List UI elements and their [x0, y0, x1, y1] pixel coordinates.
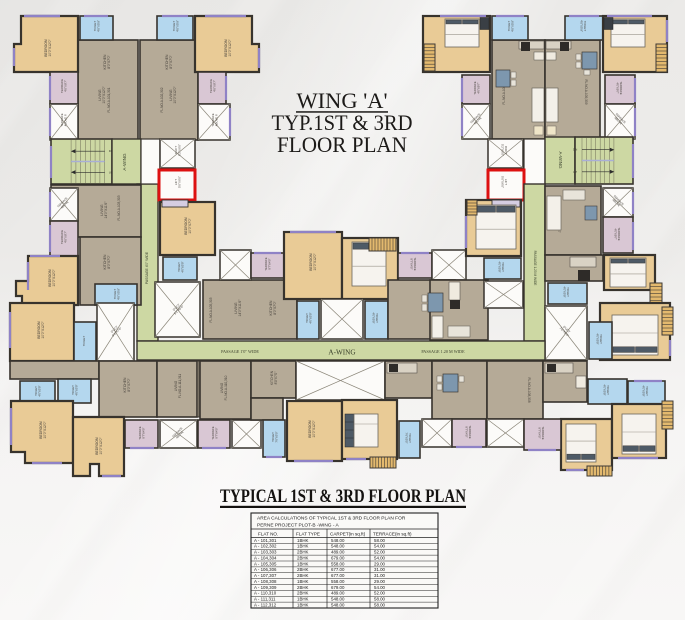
- svg-text:FLOOR PLAN: FLOOR PLAN: [277, 132, 407, 157]
- svg-text:BEDROOM10'0"X12'0": BEDROOM10'0"X12'0": [44, 39, 52, 57]
- svg-text:TERRACE9'7"X4'0": TERRACE9'7"X4'0": [211, 426, 218, 439]
- svg-text:FL.NO.A-105,305: FL.NO.A-105,305: [209, 297, 213, 322]
- svg-text:A-WING: A-WING: [558, 151, 563, 169]
- svg-text:FL.NO.A-109,309: FL.NO.A-109,309: [584, 80, 588, 105]
- svg-text:UP: UP: [573, 170, 577, 174]
- svg-text:31.00: 31.00: [374, 567, 386, 572]
- svg-text:2BHK: 2BHK: [297, 585, 309, 590]
- svg-text:TOILET4'0"X5'9": TOILET4'0"X5'9": [113, 288, 121, 300]
- svg-text:TYPICAL 1ST & 3RD FLOOR PLAN: TYPICAL 1ST & 3RD FLOOR PLAN: [220, 486, 466, 507]
- svg-text:A-WING: A-WING: [122, 153, 127, 171]
- svg-text:TERRACE(in sq.ft): TERRACE(in sq.ft): [373, 532, 412, 537]
- svg-text:TOILET4'0"X5'9": TOILET4'0"X5'9": [579, 20, 587, 32]
- svg-text:TOILET4'0"X5'9": TOILET4'0"X5'9": [305, 312, 312, 323]
- svg-text:558.00: 558.00: [331, 579, 345, 584]
- svg-text:29.00: 29.00: [374, 579, 386, 584]
- svg-text:1BHK: 1BHK: [297, 538, 309, 543]
- svg-text:TERRACE9'7"X4'0": TERRACE9'7"X4'0": [410, 257, 417, 270]
- svg-text:TERRACE4'0"X9'7": TERRACE4'0"X9'7": [614, 227, 621, 240]
- svg-text:TOILET7'6"X5'0": TOILET7'6"X5'0": [271, 431, 278, 442]
- svg-text:KITCHEN8'0"X7'0": KITCHEN8'0"X7'0": [270, 370, 278, 385]
- svg-text:A - 105,305: A - 105,305: [254, 561, 277, 566]
- svg-text:TERRACE9'7"X4'0": TERRACE9'7"X4'0": [138, 426, 145, 439]
- svg-text:TOILET4'0"X5'9": TOILET4'0"X5'9": [372, 312, 379, 323]
- svg-text:BEDROOM10'0"X12'0": BEDROOM10'0"X12'0": [308, 420, 316, 438]
- svg-text:54.00: 54.00: [374, 544, 386, 549]
- svg-text:TERRACEABOVE P.: TERRACEABOVE P.: [60, 113, 67, 126]
- svg-text:679.00: 679.00: [331, 555, 345, 560]
- svg-text:PASSAGE 4'0" WIDE: PASSAGE 4'0" WIDE: [145, 251, 149, 284]
- svg-text:TOILET4'0"X5'9": TOILET4'0"X5'9": [71, 384, 78, 395]
- svg-text:KITCHEN8'0"X7'0": KITCHEN8'0"X7'0": [103, 254, 111, 269]
- svg-text:AREA CALCULATIONS OF TYPICAL 1: AREA CALCULATIONS OF TYPICAL 1ST & 3RD F…: [257, 516, 406, 522]
- svg-text:BEDROOM10'0"X12'0": BEDROOM10'0"X12'0": [39, 421, 47, 439]
- svg-text:677.00: 677.00: [331, 573, 345, 578]
- svg-text:58.00: 58.00: [374, 538, 386, 543]
- svg-text:A - 109,309: A - 109,309: [254, 585, 277, 590]
- svg-text:29.00: 29.00: [374, 561, 386, 566]
- svg-text:1BHK: 1BHK: [297, 561, 309, 566]
- svg-text:1BHK: 1BHK: [297, 597, 309, 602]
- svg-text:1BHK: 1BHK: [297, 579, 309, 584]
- svg-text:679.00: 679.00: [331, 585, 345, 590]
- svg-text:PASSAGE 1'0" WIDE: PASSAGE 1'0" WIDE: [221, 349, 259, 354]
- svg-text:BEDROOM10'0"X12'0": BEDROOM10'0"X12'0": [95, 437, 103, 455]
- svg-text:BEDROOM10'0"X7'0": BEDROOM10'0"X7'0": [184, 217, 192, 235]
- svg-text:KITCHEN8'0"X7'0": KITCHEN8'0"X7'0": [103, 54, 111, 69]
- svg-text:A - 112,312: A - 112,312: [254, 602, 277, 607]
- svg-text:TOILET4'0"X5'9": TOILET4'0"X5'9": [172, 20, 180, 32]
- svg-text:58.00: 58.00: [374, 597, 386, 602]
- svg-text:2BHK: 2BHK: [297, 567, 309, 572]
- svg-text:548.00: 548.00: [331, 544, 345, 549]
- svg-text:TOILET7'6"X5'0": TOILET7'6"X5'0": [405, 432, 412, 443]
- svg-text:TOILET4'0"X5'9": TOILET4'0"X5'9": [34, 385, 41, 396]
- svg-text:52.00: 52.00: [374, 550, 386, 555]
- svg-text:TOILET4'0"X5'9": TOILET4'0"X5'9": [603, 384, 610, 395]
- svg-text:FL.NO.A-108,308: FL.NO.A-108,308: [527, 378, 531, 403]
- svg-text:BEDROOM10'0"X12'0": BEDROOM10'0"X12'0": [37, 321, 45, 339]
- svg-text:TOILET4'0"X5'9": TOILET4'0"X5'9": [563, 286, 570, 297]
- svg-text:31.00: 31.00: [374, 573, 386, 578]
- svg-text:2BHK: 2BHK: [297, 573, 309, 578]
- svg-text:2BHK: 2BHK: [297, 591, 309, 596]
- svg-text:TERRACE4'0"X9'7": TERRACE4'0"X9'7": [60, 230, 68, 244]
- svg-text:A - 101,301: A - 101,301: [254, 538, 277, 543]
- svg-text:TERRACE4'0"X9'7": TERRACE4'0"X9'7": [209, 79, 217, 93]
- svg-text:PASSAGE 1.20 M WIDE: PASSAGE 1.20 M WIDE: [421, 349, 465, 354]
- svg-text:TERRACE9'7"X4'0": TERRACE9'7"X4'0": [264, 257, 271, 270]
- svg-text:A-WING: A-WING: [328, 349, 355, 357]
- svg-text:A - 108,308: A - 108,308: [254, 579, 277, 584]
- svg-text:FLAT NO.: FLAT NO.: [258, 532, 278, 537]
- svg-text:KITCHEN8'0"X7'0": KITCHEN8'0"X7'0": [123, 377, 131, 392]
- svg-text:FLAT TYPE: FLAT TYPE: [296, 532, 320, 537]
- svg-text:TOILET4'0"X5'9": TOILET4'0"X5'9": [507, 20, 515, 32]
- svg-text:54.00: 54.00: [374, 585, 386, 590]
- svg-text:FL.NO.A-101,301: FL.NO.A-101,301: [107, 87, 111, 112]
- svg-text:TOILET4'0"X5'9": TOILET4'0"X5'9": [596, 333, 603, 344]
- svg-text:BEDROOM10'0"X12'0": BEDROOM10'0"X12'0": [48, 269, 56, 287]
- svg-text:PERNE PROJECT PLOT-B -WING - A: PERNE PROJECT PLOT-B -WING - A: [257, 523, 340, 529]
- svg-text:TOILET4'0"X5'9": TOILET4'0"X5'9": [93, 20, 101, 32]
- svg-text:A - 106,306: A - 106,306: [254, 567, 277, 572]
- svg-text:FL.NO.A-102,302: FL.NO.A-102,302: [160, 87, 164, 112]
- svg-text:TOILET: TOILET: [82, 336, 86, 347]
- svg-text:A - 110,310: A - 110,310: [254, 591, 277, 596]
- svg-text:TERRACE9'7"X4'0": TERRACE9'7"X4'0": [465, 425, 472, 438]
- svg-text:58.00: 58.00: [374, 602, 386, 607]
- svg-text:A - 107,307: A - 107,307: [254, 573, 277, 578]
- svg-text:A - 111,311: A - 111,311: [254, 597, 276, 602]
- svg-text:548.00: 548.00: [331, 538, 345, 543]
- svg-text:548.00: 548.00: [331, 597, 345, 602]
- svg-text:677.00: 677.00: [331, 567, 345, 572]
- svg-text:A - 102,302: A - 102,302: [254, 544, 277, 549]
- svg-text:1BHK: 1BHK: [297, 544, 309, 549]
- svg-text:PASSAGE 1.20 M WIDE: PASSAGE 1.20 M WIDE: [533, 251, 537, 286]
- svg-text:2BHK: 2BHK: [297, 550, 309, 555]
- svg-text:TERRACE4'0"X9'7": TERRACE4'0"X9'7": [473, 81, 480, 94]
- svg-text:TOILET4'0"X5'9": TOILET4'0"X5'9": [177, 261, 184, 272]
- svg-text:TOILET4'0"X5'9": TOILET4'0"X5'9": [498, 261, 505, 272]
- svg-text:54.00: 54.00: [374, 555, 386, 560]
- svg-text:TERRACEABOVE P.: TERRACEABOVE P.: [211, 113, 218, 126]
- svg-text:TOILET4'0"X5'9": TOILET4'0"X5'9": [642, 385, 649, 396]
- svg-text:TERRACE9'7"X4'0": TERRACE9'7"X4'0": [538, 426, 545, 439]
- svg-text:A - 103,303: A - 103,303: [254, 550, 277, 555]
- svg-text:548.00: 548.00: [331, 602, 345, 607]
- svg-text:489.00: 489.00: [331, 591, 345, 596]
- svg-text:BEDROOM10'0"X12'0": BEDROOM10'0"X12'0": [309, 253, 317, 271]
- svg-text:TERRACE4'0"X9'7": TERRACE4'0"X9'7": [60, 79, 68, 93]
- svg-text:FL.NO.A-103,303: FL.NO.A-103,303: [117, 195, 121, 220]
- svg-text:KITCHEN8'0"X7'0": KITCHEN8'0"X7'0": [269, 300, 277, 315]
- svg-text:KITCHEN8'0"X7'0": KITCHEN8'0"X7'0": [165, 54, 173, 69]
- svg-text:489.00: 489.00: [331, 550, 345, 555]
- svg-text:52.00: 52.00: [374, 591, 386, 596]
- svg-text:1BHK: 1BHK: [297, 602, 309, 607]
- svg-text:A - 104,304: A - 104,304: [254, 555, 277, 560]
- svg-text:558.00: 558.00: [331, 561, 345, 566]
- svg-text:TERRACE4'0"X9'7": TERRACE4'0"X9'7": [616, 81, 623, 94]
- svg-text:CARPET(in sq.ft): CARPET(in sq.ft): [330, 532, 366, 537]
- svg-text:BEDROOM10'0"X12'0": BEDROOM10'0"X12'0": [224, 39, 232, 57]
- svg-text:2BHK: 2BHK: [297, 555, 309, 560]
- svg-text:DN: DN: [573, 148, 577, 152]
